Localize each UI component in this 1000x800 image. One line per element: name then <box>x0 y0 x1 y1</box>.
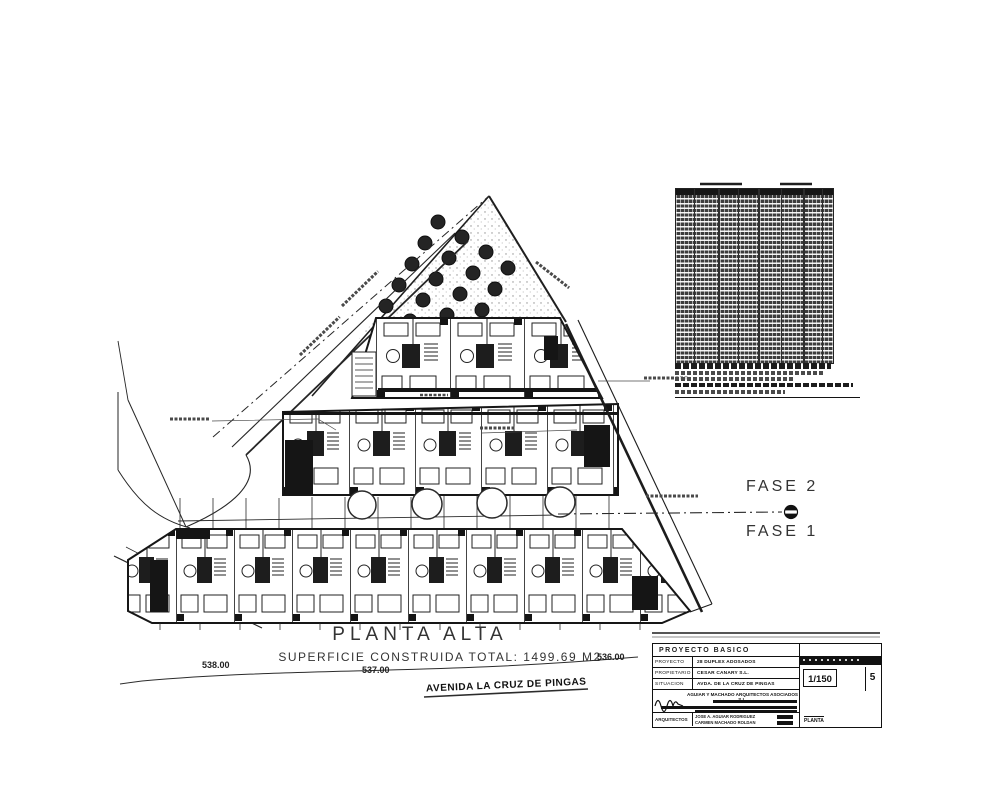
sheet-number: 5 <box>865 667 879 691</box>
sheet-word: PLANTA <box>804 716 824 724</box>
arch-chunk <box>777 715 793 719</box>
architects-section: ARQUITECTOS JOSE A. AGUIAR RODRIGUEZ CAR… <box>653 713 799 726</box>
level-536: 536.00 <box>597 652 625 662</box>
level-538: 538.00 <box>202 660 230 670</box>
table-column-line <box>781 189 782 363</box>
lower-building-block <box>128 529 690 630</box>
architects-label: ARQUITECTOS <box>653 713 693 726</box>
fase-1-label: FASE 1 <box>746 523 818 541</box>
table-underline <box>675 397 860 398</box>
plan-number-bar <box>800 656 881 665</box>
table-summary-line <box>675 390 785 394</box>
upper-building-block <box>352 318 602 398</box>
table-column-line <box>738 189 739 363</box>
architect-name-2: CARMEN MACHADO ROLDAN <box>695 720 755 726</box>
table-column-line <box>694 189 695 363</box>
arch-chunk <box>777 721 793 725</box>
middle-building-block <box>283 404 618 495</box>
owner-label: PROPIETARIO <box>653 668 693 678</box>
surface-data-table <box>675 188 834 364</box>
firm-substrip <box>713 700 797 703</box>
architect-name-1: JOSE A. AGUIAR RODRIGUEZ <box>695 714 755 720</box>
table-column-line <box>758 189 760 363</box>
phase-marker-icon <box>783 506 799 519</box>
table-column-line <box>803 189 805 363</box>
title-block-right: 1/150 5 PLANTA <box>799 644 881 727</box>
firm-section: AGUIAR Y MACHADO ARQUITECTOS ASOCIADOS S… <box>653 690 799 713</box>
table-summary-bar <box>675 363 831 369</box>
firm-substrip <box>661 706 797 709</box>
table-summary-line <box>675 377 795 381</box>
project-label: PROYECTO <box>653 657 693 667</box>
table-summary-line <box>675 371 825 375</box>
location-value: AVDA. DE LA CRUZ DE PINGAS <box>695 679 799 689</box>
phase-line <box>558 506 799 519</box>
location-label: SITUACION <box>653 679 693 689</box>
owner-value: CESAR CANARY S.L. <box>695 668 799 678</box>
built-area-note: SUPERFICIE CONSTRUIDA TOTAL: 1499.69 M2 <box>260 650 620 664</box>
level-537: 537.00 <box>362 665 390 675</box>
scale-value: 1/150 <box>803 669 837 687</box>
project-value: 28 DUPLEX ADOSADOS <box>695 657 799 667</box>
title-block-header: PROYECTO BASICO <box>653 644 799 657</box>
table-summary-line <box>675 383 853 387</box>
table-header-band <box>676 189 833 195</box>
firm-substrip <box>695 710 797 712</box>
floor-plan-sheet: FASE 2 FASE 1 PLANTA ALTA SUPERFICIE CON… <box>0 0 1000 800</box>
fase-2-label: FASE 2 <box>746 478 818 496</box>
signature-icon <box>653 690 685 712</box>
plan-title: PLANTA ALTA <box>300 624 540 646</box>
table-column-line <box>822 189 823 363</box>
table-column-line <box>718 189 720 363</box>
title-block: PROYECTO BASICO PROYECTO 28 DUPLEX ADOSA… <box>652 643 882 728</box>
